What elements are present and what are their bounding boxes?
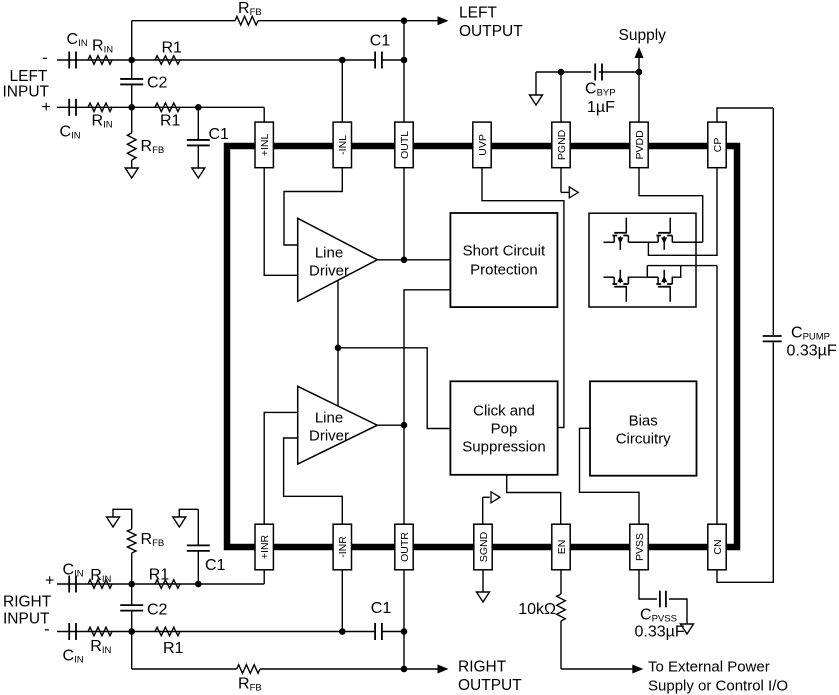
svg-text:UVP: UVP bbox=[477, 134, 489, 156]
svg-text:R1: R1 bbox=[160, 113, 181, 130]
svg-text:Line: Line bbox=[315, 410, 343, 427]
svg-text:-: - bbox=[42, 48, 48, 67]
svg-text:RIGHT: RIGHT bbox=[3, 594, 52, 611]
svg-text:Driver: Driver bbox=[309, 428, 349, 445]
svg-text:EN: EN bbox=[556, 540, 568, 555]
svg-text:LEFT: LEFT bbox=[10, 68, 48, 85]
svg-text:Supply or Control I/O: Supply or Control I/O bbox=[648, 678, 788, 695]
svg-text:C1: C1 bbox=[209, 126, 230, 143]
svg-text:Bias: Bias bbox=[629, 412, 658, 429]
svg-text:Supply: Supply bbox=[619, 27, 667, 44]
svg-text:Protection: Protection bbox=[470, 261, 538, 278]
svg-text:SGND: SGND bbox=[478, 531, 490, 562]
svg-text:INPUT: INPUT bbox=[3, 611, 50, 628]
svg-text:-INR: -INR bbox=[337, 536, 349, 558]
svg-text:OUTR: OUTR bbox=[399, 532, 411, 562]
svg-text:PGND: PGND bbox=[556, 129, 568, 160]
svg-text:+INL: +INL bbox=[259, 134, 271, 157]
svg-text:10kΩ: 10kΩ bbox=[518, 601, 556, 618]
svg-text:+: + bbox=[45, 573, 54, 590]
svg-text:OUTPUT: OUTPUT bbox=[459, 23, 523, 40]
svg-text:LEFT: LEFT bbox=[459, 5, 497, 22]
svg-text:PVSS: PVSS bbox=[634, 533, 646, 561]
svg-text:Suppression: Suppression bbox=[462, 438, 545, 455]
svg-text:Driver: Driver bbox=[309, 263, 349, 280]
svg-text:PVDD: PVDD bbox=[634, 130, 646, 160]
svg-text:CN: CN bbox=[712, 539, 724, 554]
svg-text:C2: C2 bbox=[147, 75, 168, 92]
svg-text:1µF: 1µF bbox=[587, 99, 615, 116]
svg-text:Click and: Click and bbox=[473, 402, 535, 419]
svg-text:R1: R1 bbox=[163, 640, 184, 657]
svg-text:-INL: -INL bbox=[337, 135, 349, 155]
svg-text:To External Power: To External Power bbox=[648, 659, 770, 676]
svg-text:-: - bbox=[44, 620, 50, 639]
svg-text:R1: R1 bbox=[162, 40, 183, 57]
svg-text:0.33µF: 0.33µF bbox=[787, 343, 837, 360]
svg-text:Circuitry: Circuitry bbox=[616, 430, 671, 447]
svg-text:C2: C2 bbox=[147, 602, 168, 619]
svg-text:C1: C1 bbox=[371, 600, 392, 617]
svg-text:Short Circuit: Short Circuit bbox=[463, 242, 546, 259]
svg-text:0.33µF: 0.33µF bbox=[635, 624, 685, 641]
svg-text:C1: C1 bbox=[205, 557, 226, 574]
svg-text:OUTL: OUTL bbox=[399, 131, 411, 159]
svg-text:Line: Line bbox=[315, 245, 343, 262]
svg-text:+: + bbox=[42, 99, 51, 116]
svg-text:OUTPUT: OUTPUT bbox=[458, 677, 522, 694]
svg-text:R1: R1 bbox=[149, 567, 170, 584]
svg-text:C1: C1 bbox=[370, 33, 391, 50]
svg-text:Pop: Pop bbox=[491, 420, 518, 437]
svg-text:INPUT: INPUT bbox=[3, 84, 50, 101]
svg-text:RIGHT: RIGHT bbox=[458, 659, 507, 676]
svg-text:+INR: +INR bbox=[259, 534, 271, 559]
svg-text:CP: CP bbox=[712, 138, 724, 153]
